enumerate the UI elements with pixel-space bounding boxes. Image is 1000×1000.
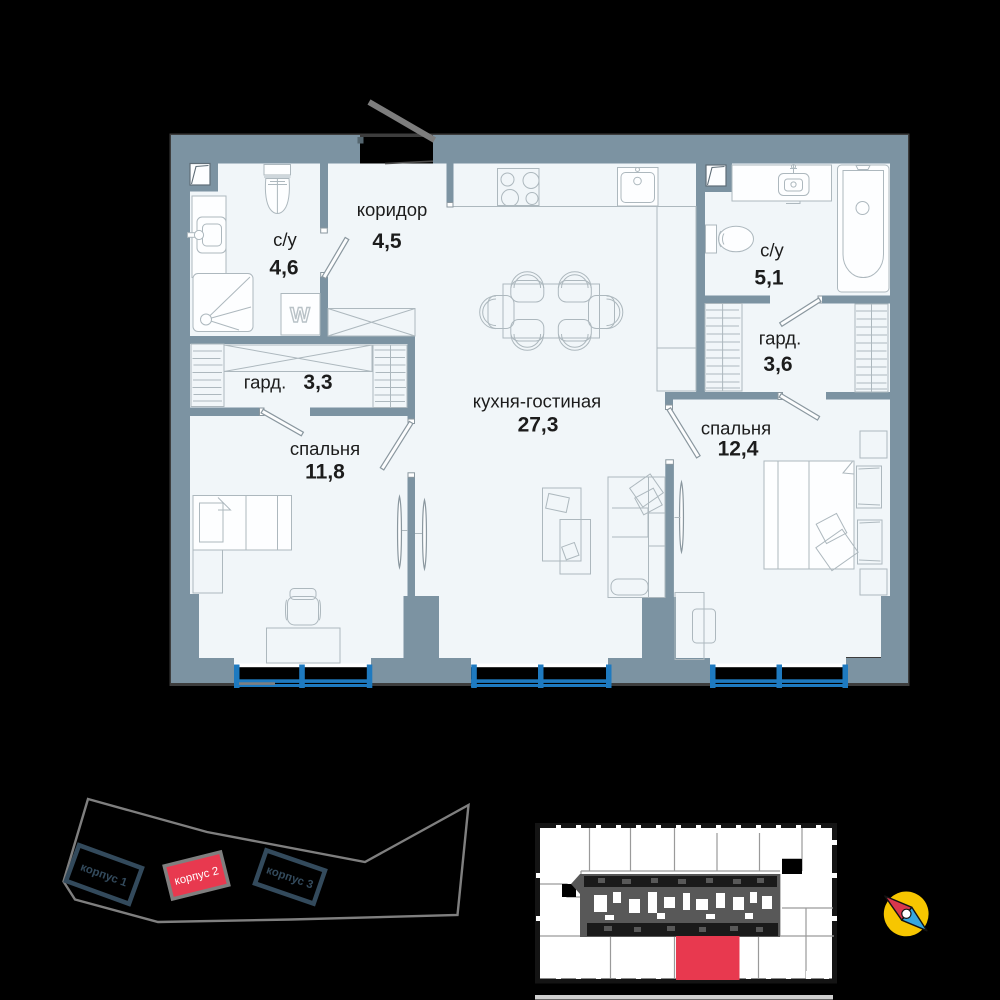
svg-text:с/у: с/у	[273, 229, 297, 250]
svg-text:4,5: 4,5	[372, 230, 402, 253]
svg-text:11,8: 11,8	[305, 461, 345, 484]
svg-text:спальня: спальня	[701, 418, 771, 439]
svg-text:гард.: гард.	[759, 328, 801, 349]
svg-text:коридор: коридор	[357, 199, 428, 220]
svg-text:27,3: 27,3	[518, 414, 559, 437]
svg-text:3,3: 3,3	[303, 371, 332, 394]
svg-text:3,6: 3,6	[763, 353, 792, 376]
svg-text:5,1: 5,1	[754, 267, 784, 290]
svg-text:4,6: 4,6	[269, 257, 298, 280]
svg-text:спальня: спальня	[290, 438, 360, 459]
svg-text:W: W	[290, 304, 310, 327]
svg-text:12,4: 12,4	[718, 438, 759, 461]
svg-text:гард.: гард.	[244, 372, 286, 393]
svg-text:кухня-гостиная: кухня-гостиная	[473, 391, 601, 412]
svg-text:с/у: с/у	[760, 240, 784, 261]
